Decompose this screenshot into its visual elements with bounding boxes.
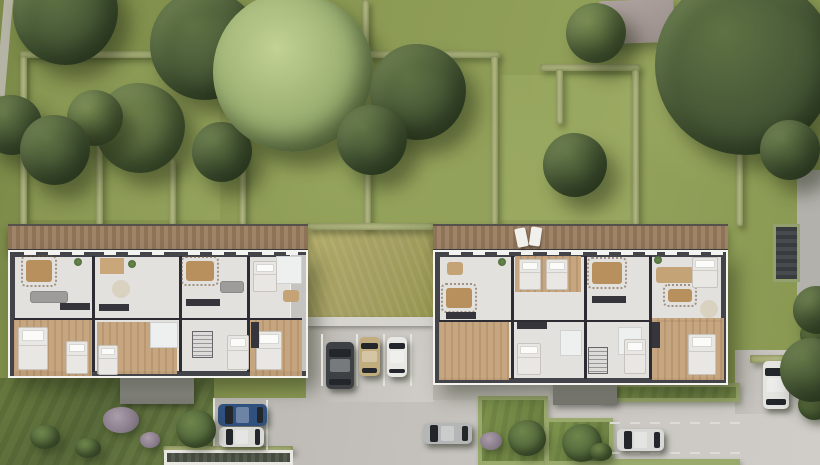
- stall-dash-line: [610, 422, 745, 424]
- hedge: [169, 158, 176, 226]
- stall-dash-line: [610, 452, 745, 454]
- hedge: [632, 69, 639, 226]
- car-rear-glass: [257, 407, 263, 424]
- hedge-courtyard-top: [306, 223, 434, 230]
- tree: [566, 3, 626, 63]
- rug: [112, 280, 130, 298]
- car-roof: [362, 351, 377, 362]
- car-windshield: [624, 431, 632, 449]
- sofa: [220, 281, 244, 293]
- bed: [517, 343, 541, 375]
- wall: [511, 256, 514, 379]
- car-windshield: [430, 425, 438, 442]
- window: [236, 252, 248, 255]
- hedge-strip-right-of-road: [600, 383, 740, 402]
- plant: [654, 256, 662, 264]
- window: [188, 252, 200, 255]
- sofa: [656, 267, 694, 283]
- boundary-wall-top-left: [0, 0, 13, 96]
- stairs: [192, 331, 213, 358]
- dining-table: [446, 288, 472, 308]
- wood-floor: [439, 322, 509, 380]
- window: [72, 252, 84, 255]
- window: [621, 252, 633, 255]
- window: [128, 252, 140, 255]
- tree: [760, 120, 820, 180]
- window: [152, 252, 164, 255]
- bed: [688, 334, 716, 375]
- wardrobe: [251, 322, 259, 348]
- site-plan-render: [0, 0, 820, 465]
- bed: [692, 257, 718, 288]
- dining-table: [186, 261, 214, 281]
- stall-line: [383, 334, 385, 386]
- window: [449, 252, 461, 255]
- car-windshield: [361, 343, 378, 349]
- window: [689, 252, 701, 255]
- bed: [253, 261, 277, 292]
- courtyard-retaining-wall: [308, 317, 433, 326]
- courtyard-lawn: [308, 228, 433, 320]
- tree: [20, 115, 90, 185]
- bush-purple: [140, 432, 160, 448]
- window: [547, 252, 559, 255]
- car-roof: [441, 426, 455, 441]
- car-rear-glass: [389, 369, 404, 374]
- entrance-canopy-right: [553, 383, 617, 405]
- armchair: [283, 290, 299, 302]
- bed: [519, 259, 541, 290]
- sofa: [30, 291, 68, 303]
- bathroom: [276, 256, 302, 284]
- bed: [66, 341, 88, 374]
- plant: [74, 258, 82, 266]
- grass-strip-bottom-right: [600, 459, 740, 465]
- bush: [176, 410, 216, 448]
- dining-table: [26, 260, 52, 282]
- wall: [92, 256, 95, 372]
- bed: [227, 335, 249, 370]
- window: [521, 252, 533, 255]
- hedge: [491, 56, 498, 226]
- kitchen-counter: [60, 303, 90, 310]
- kitchen-counter: [592, 296, 626, 303]
- car-blue: [218, 404, 267, 426]
- stall-line: [356, 334, 358, 386]
- bush: [590, 443, 612, 461]
- tree: [543, 133, 607, 197]
- car-windshield: [225, 406, 233, 424]
- car-roof: [330, 359, 350, 372]
- plant: [128, 260, 136, 268]
- bush: [30, 425, 60, 449]
- car-rear-glass: [255, 429, 260, 444]
- plant: [498, 258, 506, 266]
- window: [597, 252, 609, 255]
- car-tan: [359, 337, 380, 376]
- car-roof: [390, 351, 404, 362]
- window: [571, 252, 583, 255]
- kitchen-counter: [446, 312, 476, 319]
- window: [473, 252, 485, 255]
- window: [104, 252, 116, 255]
- bed: [546, 259, 568, 290]
- car-dark-gray: [326, 342, 354, 389]
- bed: [256, 331, 282, 370]
- car-roof: [634, 432, 647, 448]
- bush: [508, 420, 546, 456]
- window: [262, 252, 274, 255]
- car-rear-glass: [362, 368, 378, 373]
- car-windshield: [329, 349, 352, 357]
- car-windshield: [226, 429, 233, 445]
- stairs: [588, 347, 608, 374]
- car-rear-glass: [766, 399, 786, 405]
- armchair: [447, 262, 463, 275]
- kitchen-counter: [517, 322, 547, 329]
- bathroom: [150, 322, 178, 348]
- tree: [337, 105, 407, 175]
- kitchen-counter: [186, 299, 220, 306]
- bed: [18, 327, 48, 370]
- window: [497, 252, 509, 255]
- bathroom: [560, 330, 582, 356]
- roof-deck-right-building: [433, 224, 728, 251]
- window: [286, 252, 298, 255]
- car-silver-bottom-right: [617, 429, 664, 451]
- stall-line: [410, 334, 412, 386]
- bush: [75, 438, 101, 458]
- window: [665, 252, 677, 255]
- car-white-bottom-left: [219, 427, 264, 447]
- roof-deck-left-building: [8, 224, 308, 251]
- bed: [98, 345, 118, 375]
- car-rear-glass: [654, 432, 660, 449]
- hedge: [540, 64, 640, 71]
- bed: [624, 339, 646, 374]
- car-silver-driveway: [423, 423, 472, 444]
- coffee-table: [668, 289, 692, 302]
- car-white-stall: [387, 337, 407, 377]
- entrance-canopy-left: [120, 377, 194, 404]
- car-roof: [235, 430, 248, 444]
- stall-line: [321, 334, 323, 386]
- wardrobe: [652, 322, 660, 348]
- car-rear-glass: [462, 426, 468, 442]
- pergola-right: [773, 224, 800, 282]
- rug: [700, 300, 718, 318]
- hedge: [556, 69, 563, 124]
- window: [645, 252, 657, 255]
- car-roof: [236, 407, 250, 423]
- car-windshield: [389, 343, 405, 349]
- sideboard: [100, 258, 124, 274]
- bush-purple: [480, 432, 502, 450]
- kitchen-counter: [99, 304, 129, 311]
- bush-purple: [103, 407, 139, 433]
- window: [711, 252, 723, 255]
- shelter-bottom: [164, 450, 293, 465]
- window: [212, 252, 224, 255]
- car-rear-glass: [329, 379, 350, 385]
- hedge: [736, 148, 743, 226]
- dining-table: [592, 262, 622, 284]
